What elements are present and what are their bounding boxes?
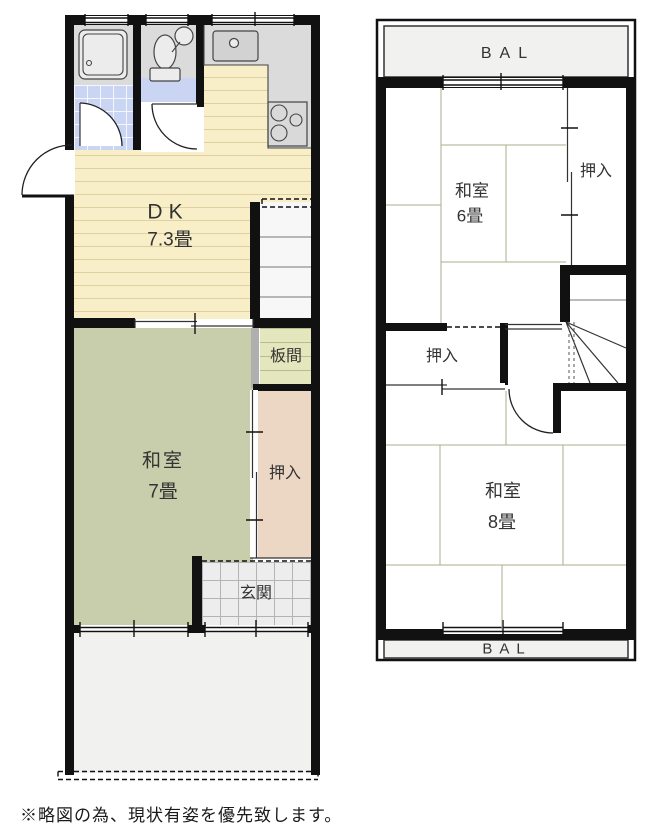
room-toilet (141, 25, 196, 78)
kitchen-counter-top (204, 25, 311, 65)
room-bathroom (74, 25, 133, 85)
room-bathroom-tile-floor (74, 85, 133, 150)
landing-2f (505, 331, 562, 383)
room-toilet-floor (141, 78, 196, 102)
kitchen-counter-right (268, 65, 311, 148)
label-itanoma: 板間 (270, 349, 302, 365)
label-dk-size: 7.3畳 (147, 231, 192, 250)
label-washitsu6: 和室 (455, 183, 489, 200)
room-washitsu-6jo (386, 88, 570, 323)
disclaimer-note: ※略図の為、現状有姿を優先致します。 (20, 801, 342, 826)
label-bal-bottom: BAL (482, 642, 531, 657)
hall-dashed-opening (447, 325, 562, 330)
window-kitchen (212, 12, 294, 26)
label-oshiire-1f: 押入 (269, 466, 301, 482)
staircase-2f (570, 275, 626, 383)
label-genkan: 玄関 (240, 586, 272, 602)
label-oshiire-2f-upper: 押入 (580, 164, 612, 180)
label-dk: DK (147, 202, 188, 223)
label-washitsu7: 和室 (142, 452, 184, 471)
floorplan-canvas: DK 7.3畳 和室 7畳 板間 押入 玄関 BAL 和室 6畳 押入 押入 和… (0, 0, 650, 834)
staircase-1f (260, 202, 311, 318)
label-washitsu8: 和室 (485, 482, 521, 500)
oshiire-1f-track-gap (253, 390, 258, 558)
open-yard-area (74, 633, 311, 773)
label-washitsu6-size: 6畳 (457, 208, 483, 225)
label-bal-top: BAL (481, 46, 535, 62)
label-washitsu7-size: 7畳 (148, 483, 178, 502)
room-washitsu-8jo (386, 391, 626, 630)
door-side-entrance (22, 145, 74, 196)
label-oshiire-2f-lower: 押入 (426, 349, 458, 365)
label-washitsu8-size: 8畳 (488, 513, 516, 531)
room-vestibule (141, 102, 204, 152)
pillar-1f (251, 322, 259, 388)
